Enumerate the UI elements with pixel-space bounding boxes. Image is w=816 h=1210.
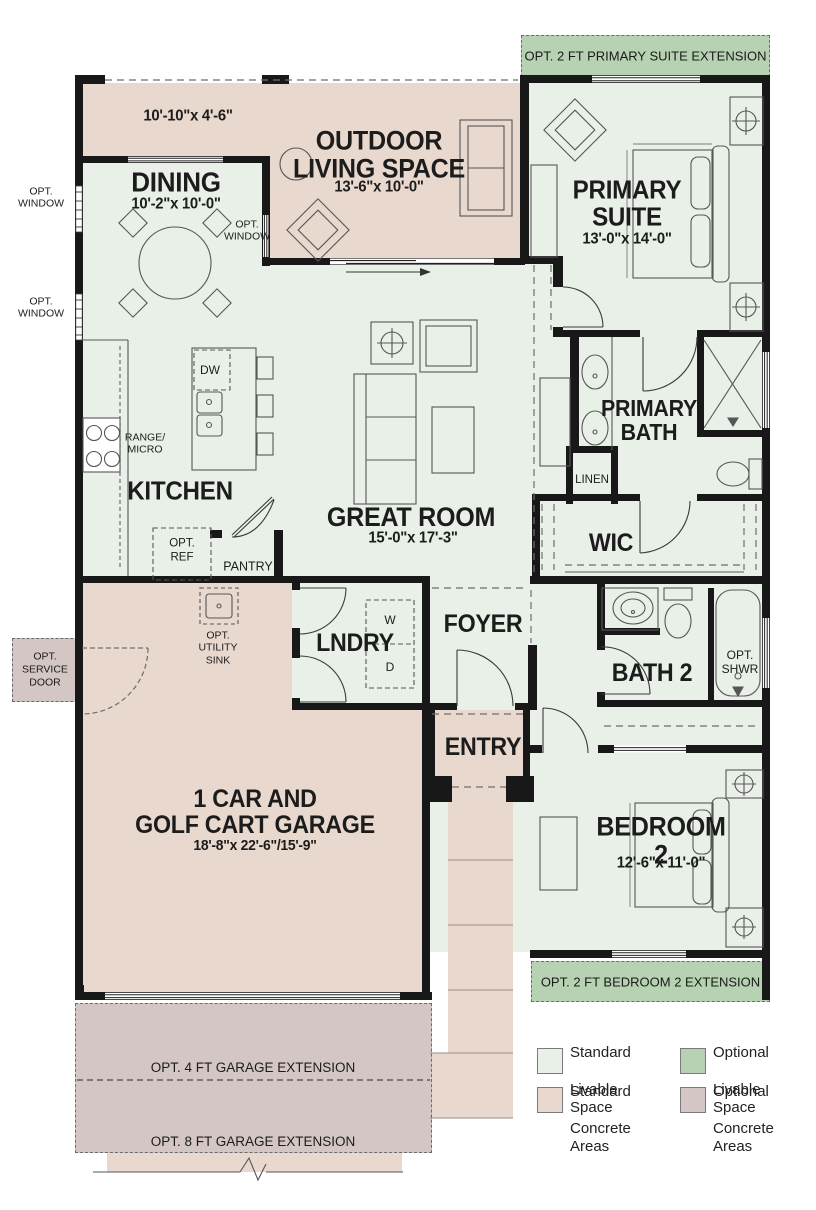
bedroom2-dims: 12'-6"x 11'-0"	[617, 856, 705, 873]
range-micro-label: RANGE/ MICRO	[125, 432, 165, 457]
legend-swatch-standard-concrete	[537, 1087, 563, 1113]
primary-bath-door	[643, 337, 697, 391]
driveway-edge	[93, 1158, 403, 1180]
legend-swatch-optional-livable	[680, 1048, 706, 1074]
garage-dims: 18'-8"x 22'-6"/15'-9"	[193, 838, 316, 854]
opt-utility-sink-label: OPT. UTILITY SINK	[198, 629, 237, 666]
garage-label: 1 CAR AND GOLF CART GARAGE	[135, 786, 375, 839]
laundry-door-1	[300, 588, 346, 634]
legend-label-standard-concrete: Standard Concrete Areas	[570, 1083, 631, 1156]
opt-window-label-3: OPT. WINDOW	[224, 219, 270, 244]
opt-ref-label: OPT. REF	[169, 537, 195, 564]
garage-extension-4-label: OPT. 4 FT GARAGE EXTENSION	[151, 1060, 356, 1076]
washer-label: W	[384, 613, 395, 627]
entry-label: ENTRY	[445, 734, 522, 760]
primary-suite-label: PRIMARY SUITE	[573, 177, 682, 232]
opt-window-label-2: OPT. WINDOW	[18, 296, 64, 321]
bath2-label: BATH 2	[612, 660, 693, 686]
primary-suite-dims: 13'-0"x 14'-0"	[582, 232, 671, 249]
tub	[716, 590, 760, 696]
laundry-label: LNDRY	[316, 630, 394, 656]
outdoor-living-dims: 13'-6"x 10'-0"	[334, 180, 423, 197]
great-room-label: GREAT ROOM	[327, 503, 495, 531]
dw-label: DW	[200, 363, 220, 377]
front-door	[457, 650, 513, 706]
dryer-label: D	[386, 660, 395, 674]
dining-table	[119, 209, 231, 317]
pantry-door	[232, 497, 274, 537]
wic-door	[640, 501, 690, 553]
great-room-dims: 15'-0"x 17'-3"	[368, 531, 457, 548]
patio-dims: 10'-10"x 4'-6"	[143, 109, 232, 126]
garage-extension-8-label: OPT. 8 FT GARAGE EXTENSION	[151, 1134, 356, 1150]
opt-shwr-label: OPT. SHWR	[722, 648, 759, 676]
floor-plan: OPT. 2 FT PRIMARY SUITE EXTENSION OPT. 2…	[0, 0, 816, 1210]
utility-sink	[200, 588, 238, 624]
linen-label: LINEN	[575, 474, 609, 488]
walkway-lines	[430, 860, 513, 1118]
dining-dims: 10'-2"x 10'-0"	[131, 197, 220, 214]
kitchen-label: KITCHEN	[127, 477, 233, 504]
pantry-label: PANTRY	[223, 560, 273, 575]
bedroom2-door	[543, 708, 588, 753]
legend-swatch-optional-concrete	[680, 1087, 706, 1113]
outdoor-living-label: OUTDOOR LIVING SPACE	[293, 127, 465, 184]
legend-swatch-standard-livable	[537, 1048, 563, 1074]
laundry-door-2	[300, 656, 346, 702]
opt-window-label-1: OPT. WINDOW	[18, 186, 64, 211]
wic-label: WIC	[589, 530, 633, 556]
primary-bath-label: PRIMARY BATH	[601, 396, 697, 444]
legend-label-optional-concrete: Optional Concrete Areas	[713, 1083, 774, 1156]
primary-suite-door	[563, 287, 603, 327]
dining-label: DINING	[131, 167, 220, 196]
foyer-label: FOYER	[444, 611, 523, 637]
great-room-furniture	[354, 320, 570, 504]
